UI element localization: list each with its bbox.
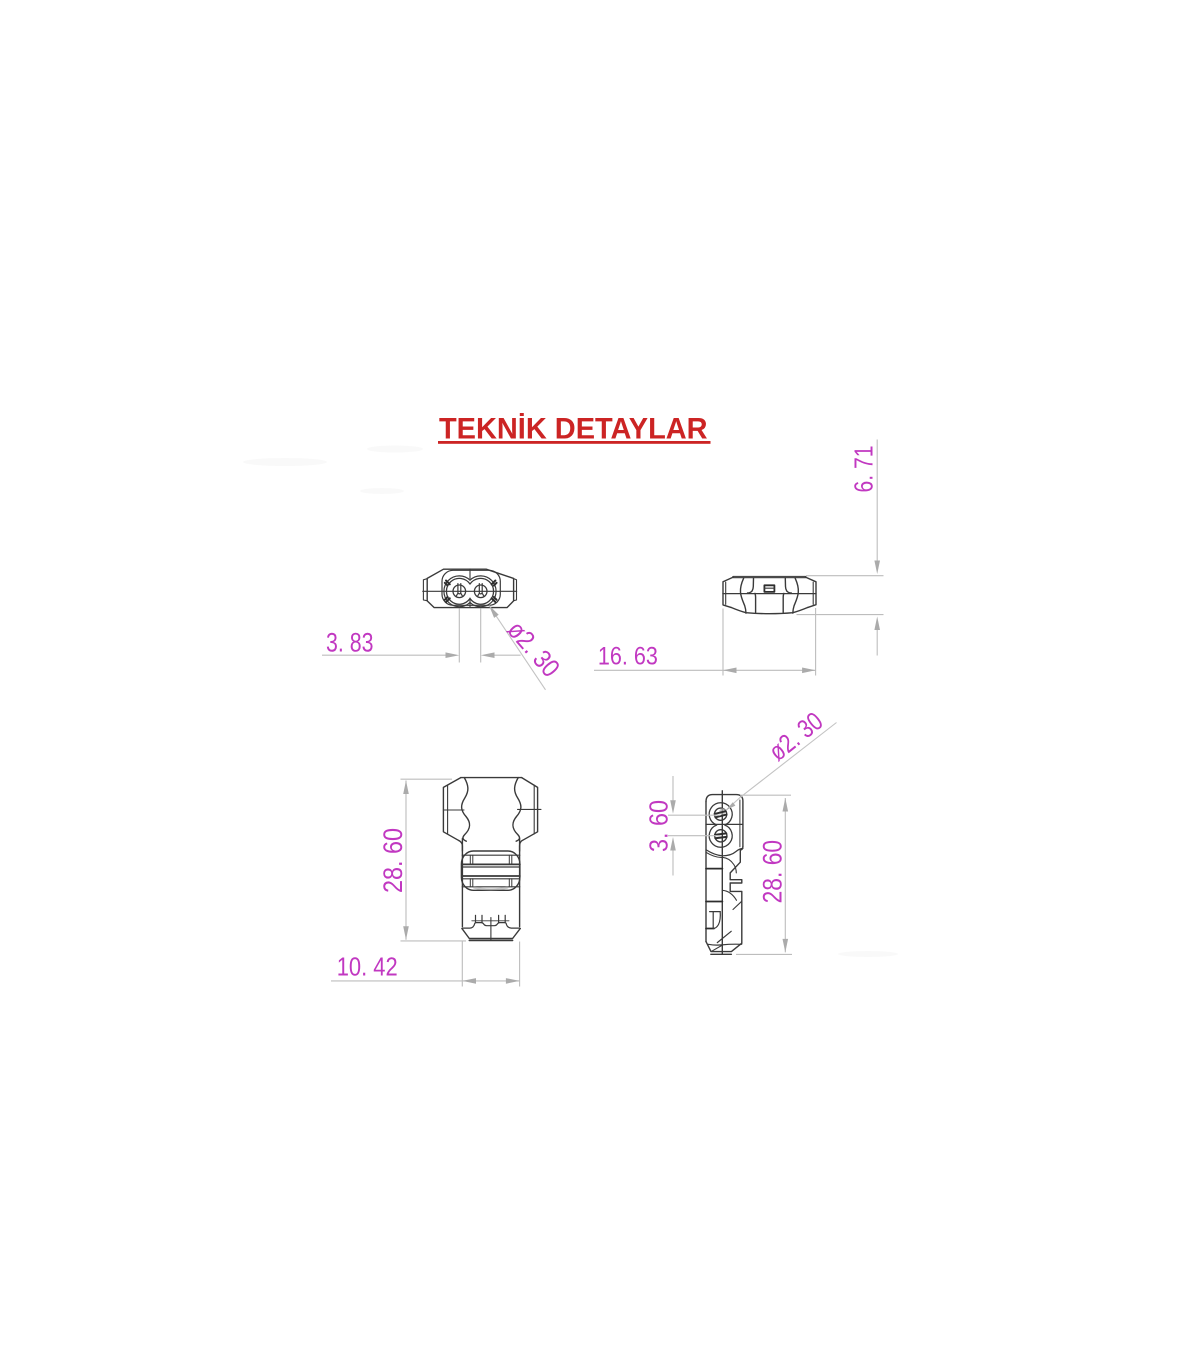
svg-text:28. 60: 28. 60 xyxy=(378,828,408,893)
svg-text:3. 83: 3. 83 xyxy=(326,628,374,658)
svg-text:3. 60: 3. 60 xyxy=(643,800,673,852)
svg-text:10. 42: 10. 42 xyxy=(337,952,398,982)
svg-text:28. 60: 28. 60 xyxy=(758,840,788,904)
svg-text:TEKNİK DETAYLAR: TEKNİK DETAYLAR xyxy=(439,412,708,445)
svg-text:ø2. 30: ø2. 30 xyxy=(763,706,829,767)
svg-text:6. 71: 6. 71 xyxy=(848,446,878,493)
svg-text:16. 63: 16. 63 xyxy=(598,643,658,671)
